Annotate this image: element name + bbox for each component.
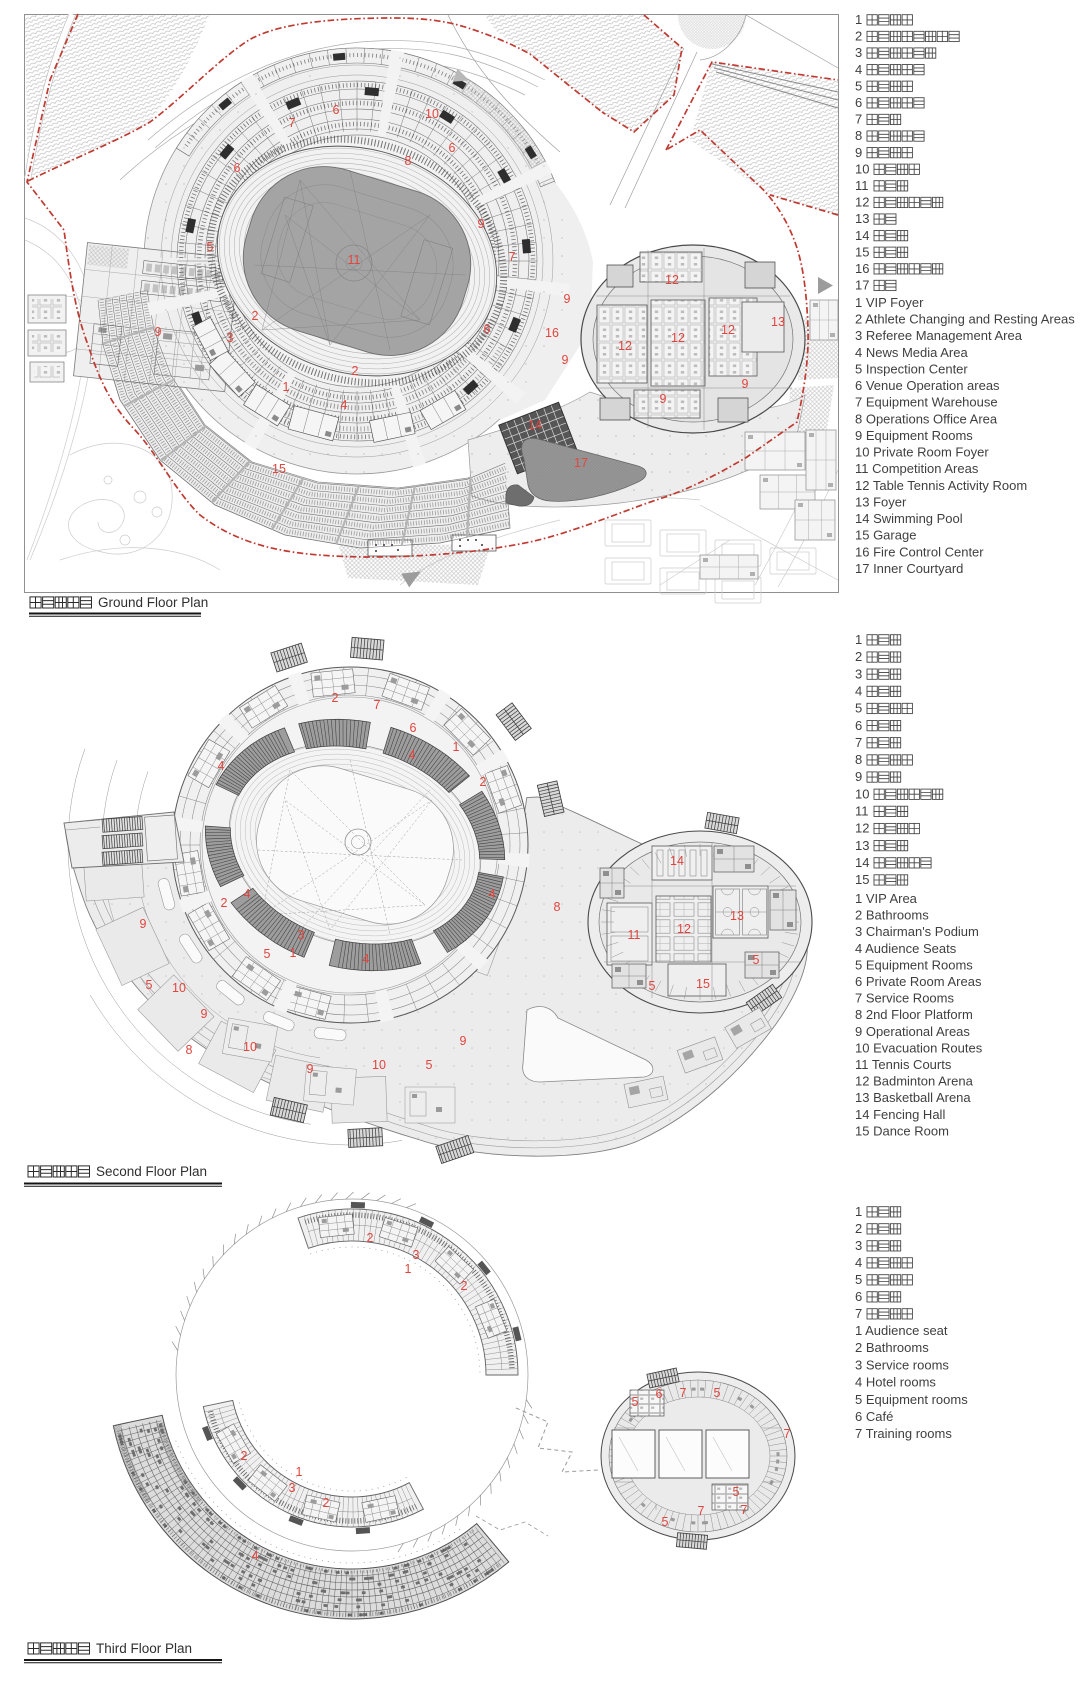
svg-text:2: 2 [221, 896, 228, 910]
svg-text:7: 7 [855, 1306, 862, 1321]
svg-text:4 News Media Area: 4 News Media Area [855, 345, 968, 360]
svg-text:13: 13 [855, 211, 869, 226]
svg-text:Ground Floor Plan: Ground Floor Plan [98, 595, 208, 610]
svg-text:17: 17 [574, 456, 588, 470]
svg-text:12 Badminton Arena: 12 Badminton Arena [855, 1074, 974, 1089]
svg-text:10: 10 [425, 107, 439, 121]
svg-text:2: 2 [480, 775, 487, 789]
svg-text:11: 11 [855, 804, 869, 819]
svg-text:5 Equipment rooms: 5 Equipment rooms [855, 1392, 968, 1407]
svg-text:5: 5 [146, 978, 153, 992]
svg-text:12: 12 [721, 323, 735, 337]
svg-text:4: 4 [855, 62, 862, 77]
svg-text:6: 6 [410, 721, 417, 735]
svg-text:2 Bathrooms: 2 Bathrooms [855, 1340, 929, 1355]
svg-text:3: 3 [855, 666, 862, 681]
svg-text:3: 3 [855, 1238, 862, 1253]
svg-text:13: 13 [730, 909, 744, 923]
svg-text:16: 16 [855, 261, 869, 276]
svg-text:10: 10 [243, 1040, 257, 1054]
svg-text:3: 3 [289, 1481, 296, 1495]
svg-text:5: 5 [855, 1272, 862, 1287]
svg-text:3 Service rooms: 3 Service rooms [855, 1357, 949, 1372]
svg-text:6: 6 [855, 95, 862, 110]
svg-text:7: 7 [741, 1503, 748, 1517]
svg-text:6: 6 [484, 322, 491, 336]
svg-text:1: 1 [290, 946, 297, 960]
svg-text:5: 5 [632, 1395, 639, 1409]
svg-text:5: 5 [649, 979, 656, 993]
svg-text:2: 2 [855, 1221, 862, 1236]
svg-text:10: 10 [372, 1058, 386, 1072]
svg-text:8 2nd Floor Platform: 8 2nd Floor Platform [855, 1007, 973, 1022]
svg-text:10 Evacuation Routes: 10 Evacuation Routes [855, 1040, 983, 1055]
svg-text:17: 17 [855, 278, 869, 293]
svg-text:9: 9 [140, 917, 147, 931]
svg-text:4: 4 [244, 887, 251, 901]
svg-text:2: 2 [855, 649, 862, 664]
svg-text:6 Café: 6 Café [855, 1409, 893, 1424]
svg-text:17 Inner Courtyard: 17 Inner Courtyard [855, 561, 963, 576]
svg-text:13 Foyer: 13 Foyer [855, 494, 907, 509]
svg-text:9: 9 [564, 292, 571, 306]
svg-text:9: 9 [562, 353, 569, 367]
svg-text:9: 9 [478, 217, 485, 231]
svg-text:15 Garage: 15 Garage [855, 528, 916, 543]
svg-text:10: 10 [855, 786, 869, 801]
svg-text:1: 1 [855, 632, 862, 647]
svg-text:1: 1 [283, 380, 290, 394]
svg-text:14: 14 [670, 854, 684, 868]
svg-text:5: 5 [855, 78, 862, 93]
svg-text:6: 6 [333, 103, 340, 117]
svg-text:14: 14 [855, 855, 869, 870]
svg-text:3 Referee Management Area: 3 Referee Management Area [855, 328, 1023, 343]
svg-text:7: 7 [784, 1427, 791, 1441]
svg-text:14: 14 [528, 418, 542, 432]
svg-text:7: 7 [509, 250, 516, 264]
svg-text:12: 12 [618, 339, 632, 353]
svg-text:5: 5 [753, 953, 760, 967]
svg-text:4: 4 [855, 1255, 862, 1270]
svg-text:1: 1 [453, 740, 460, 754]
svg-text:3: 3 [227, 331, 234, 345]
svg-text:13: 13 [771, 315, 785, 329]
svg-text:14: 14 [855, 228, 869, 243]
svg-text:7: 7 [680, 1386, 687, 1400]
svg-text:1 Audience seat: 1 Audience seat [855, 1323, 948, 1338]
svg-text:4: 4 [218, 759, 225, 773]
svg-text:4: 4 [341, 398, 348, 412]
svg-text:15: 15 [272, 462, 286, 476]
svg-text:9 Equipment Rooms: 9 Equipment Rooms [855, 428, 973, 443]
svg-text:5: 5 [264, 947, 271, 961]
svg-text:5: 5 [662, 1515, 669, 1529]
svg-text:2 Athlete Changing and Resting: 2 Athlete Changing and Resting Areas [855, 312, 1075, 327]
svg-text:3: 3 [298, 928, 305, 942]
svg-text:8: 8 [186, 1043, 193, 1057]
svg-text:4: 4 [489, 887, 496, 901]
svg-text:6 Private Room Areas: 6 Private Room Areas [855, 974, 982, 989]
svg-text:2: 2 [367, 1231, 374, 1245]
svg-text:10 Private Room Foyer: 10 Private Room Foyer [855, 445, 989, 460]
svg-text:11 Competition Areas: 11 Competition Areas [855, 461, 979, 476]
svg-text:7: 7 [698, 1504, 705, 1518]
svg-text:2: 2 [252, 309, 259, 323]
svg-text:3 Chairman's Podium: 3 Chairman's Podium [855, 924, 979, 939]
svg-text:4 Hotel rooms: 4 Hotel rooms [855, 1375, 936, 1390]
svg-text:15: 15 [855, 872, 869, 887]
svg-text:16 Fire Control Center: 16 Fire Control Center [855, 544, 984, 559]
svg-text:3: 3 [413, 1248, 420, 1262]
svg-text:9: 9 [201, 1007, 208, 1021]
svg-text:2: 2 [332, 691, 339, 705]
svg-text:1: 1 [855, 1204, 862, 1219]
svg-text:14 Swimming Pool: 14 Swimming Pool [855, 511, 963, 526]
svg-text:2: 2 [855, 29, 862, 44]
svg-text:12: 12 [665, 273, 679, 287]
svg-text:12 Table Tennis Activity Room: 12 Table Tennis Activity Room [855, 478, 1027, 493]
svg-text:2: 2 [323, 1496, 330, 1510]
svg-text:9: 9 [855, 145, 862, 160]
svg-text:1: 1 [855, 12, 862, 27]
svg-text:5: 5 [714, 1386, 721, 1400]
svg-text:6: 6 [234, 161, 241, 175]
svg-text:4: 4 [409, 748, 416, 762]
svg-text:10: 10 [855, 161, 869, 176]
svg-text:1: 1 [405, 1262, 412, 1276]
svg-text:9 Operational Areas: 9 Operational Areas [855, 1024, 970, 1039]
svg-text:7 Service Rooms: 7 Service Rooms [855, 991, 954, 1006]
svg-text:14 Fencing Hall: 14 Fencing Hall [855, 1107, 945, 1122]
svg-text:1 VIP Area: 1 VIP Area [855, 891, 918, 906]
svg-text:8: 8 [855, 752, 862, 767]
svg-text:Third Floor Plan: Third Floor Plan [96, 1641, 192, 1656]
svg-text:13: 13 [855, 838, 869, 853]
svg-text:1 VIP Foyer: 1 VIP Foyer [855, 295, 924, 310]
svg-text:2: 2 [241, 1449, 248, 1463]
svg-text:16: 16 [545, 326, 559, 340]
svg-text:11: 11 [628, 928, 641, 942]
svg-text:15: 15 [855, 244, 869, 259]
svg-text:5: 5 [207, 240, 214, 254]
svg-text:7: 7 [289, 116, 296, 130]
svg-text:6 Venue Operation areas: 6 Venue Operation areas [855, 378, 1000, 393]
svg-text:5 Equipment Rooms: 5 Equipment Rooms [855, 957, 973, 972]
svg-text:12: 12 [855, 821, 869, 836]
svg-text:12: 12 [671, 331, 685, 345]
svg-text:7: 7 [855, 735, 862, 750]
svg-text:3: 3 [855, 45, 862, 60]
svg-text:9: 9 [660, 392, 667, 406]
svg-text:7: 7 [374, 698, 381, 712]
svg-text:12: 12 [855, 195, 869, 210]
svg-text:5: 5 [855, 701, 862, 716]
svg-text:7: 7 [855, 112, 862, 127]
svg-text:15 Dance Room: 15 Dance Room [855, 1123, 949, 1138]
svg-text:6: 6 [855, 1289, 862, 1304]
svg-text:8 Operations Office Area: 8 Operations Office Area [855, 411, 998, 426]
svg-text:7 Equipment Warehouse: 7 Equipment Warehouse [855, 395, 998, 410]
svg-text:8: 8 [855, 128, 862, 143]
svg-text:8: 8 [554, 900, 561, 914]
svg-text:6: 6 [656, 1387, 663, 1401]
svg-text:10: 10 [172, 981, 186, 995]
svg-text:11 Tennis Courts: 11 Tennis Courts [855, 1057, 952, 1072]
svg-text:4: 4 [855, 684, 862, 699]
svg-text:Second Floor Plan: Second Floor Plan [96, 1164, 207, 1179]
svg-text:5 Inspection Center: 5 Inspection Center [855, 362, 968, 377]
svg-text:4: 4 [363, 952, 370, 966]
svg-text:9: 9 [742, 377, 749, 391]
svg-text:13 Basketball Arena: 13 Basketball Arena [855, 1090, 971, 1105]
svg-text:7 Training rooms: 7 Training rooms [855, 1426, 952, 1441]
svg-text:9: 9 [155, 325, 162, 339]
svg-text:1: 1 [296, 1465, 303, 1479]
svg-text:5: 5 [426, 1058, 433, 1072]
svg-text:6: 6 [855, 718, 862, 733]
svg-text:4: 4 [252, 1549, 259, 1563]
svg-text:5: 5 [733, 1485, 740, 1499]
svg-text:2: 2 [461, 1279, 468, 1293]
svg-text:11: 11 [348, 253, 361, 267]
svg-text:15: 15 [696, 977, 710, 991]
svg-text:4 Audience Seats: 4 Audience Seats [855, 941, 957, 956]
svg-text:8: 8 [405, 154, 412, 168]
svg-text:2: 2 [352, 364, 359, 378]
svg-text:9: 9 [307, 1062, 314, 1076]
svg-text:2 Bathrooms: 2 Bathrooms [855, 908, 929, 923]
svg-text:9: 9 [855, 769, 862, 784]
svg-text:6: 6 [449, 141, 456, 155]
svg-text:12: 12 [677, 922, 691, 936]
svg-text:9: 9 [460, 1034, 467, 1048]
svg-text:11: 11 [855, 178, 869, 193]
